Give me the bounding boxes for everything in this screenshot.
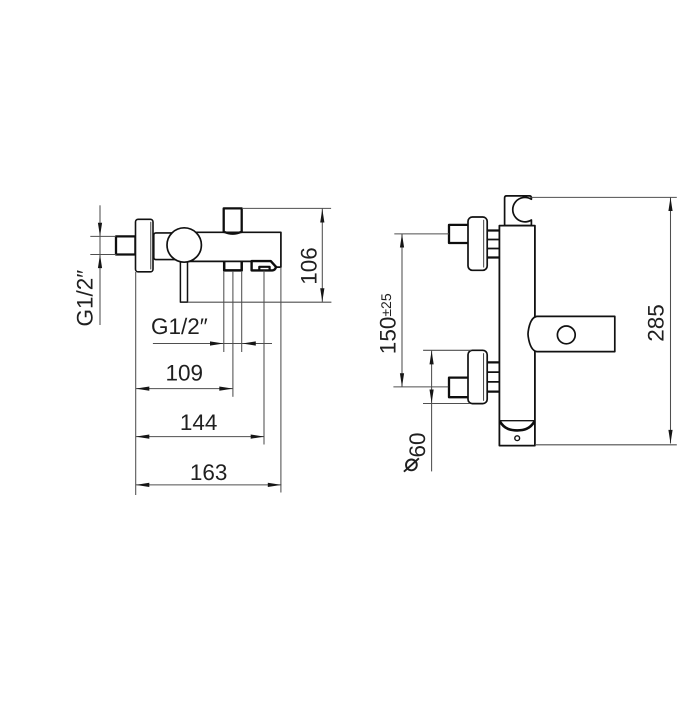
svg-text:G1/2″: G1/2″ — [151, 314, 208, 339]
svg-text:60: 60 — [405, 432, 430, 457]
svg-text:144: 144 — [180, 410, 218, 435]
svg-text:150±25: 150±25 — [376, 293, 401, 354]
svg-text:285: 285 — [644, 304, 669, 342]
svg-text:109: 109 — [166, 360, 204, 385]
svg-text:163: 163 — [190, 460, 228, 485]
svg-text:G1/2″: G1/2″ — [73, 270, 98, 327]
svg-text:106: 106 — [297, 247, 322, 285]
